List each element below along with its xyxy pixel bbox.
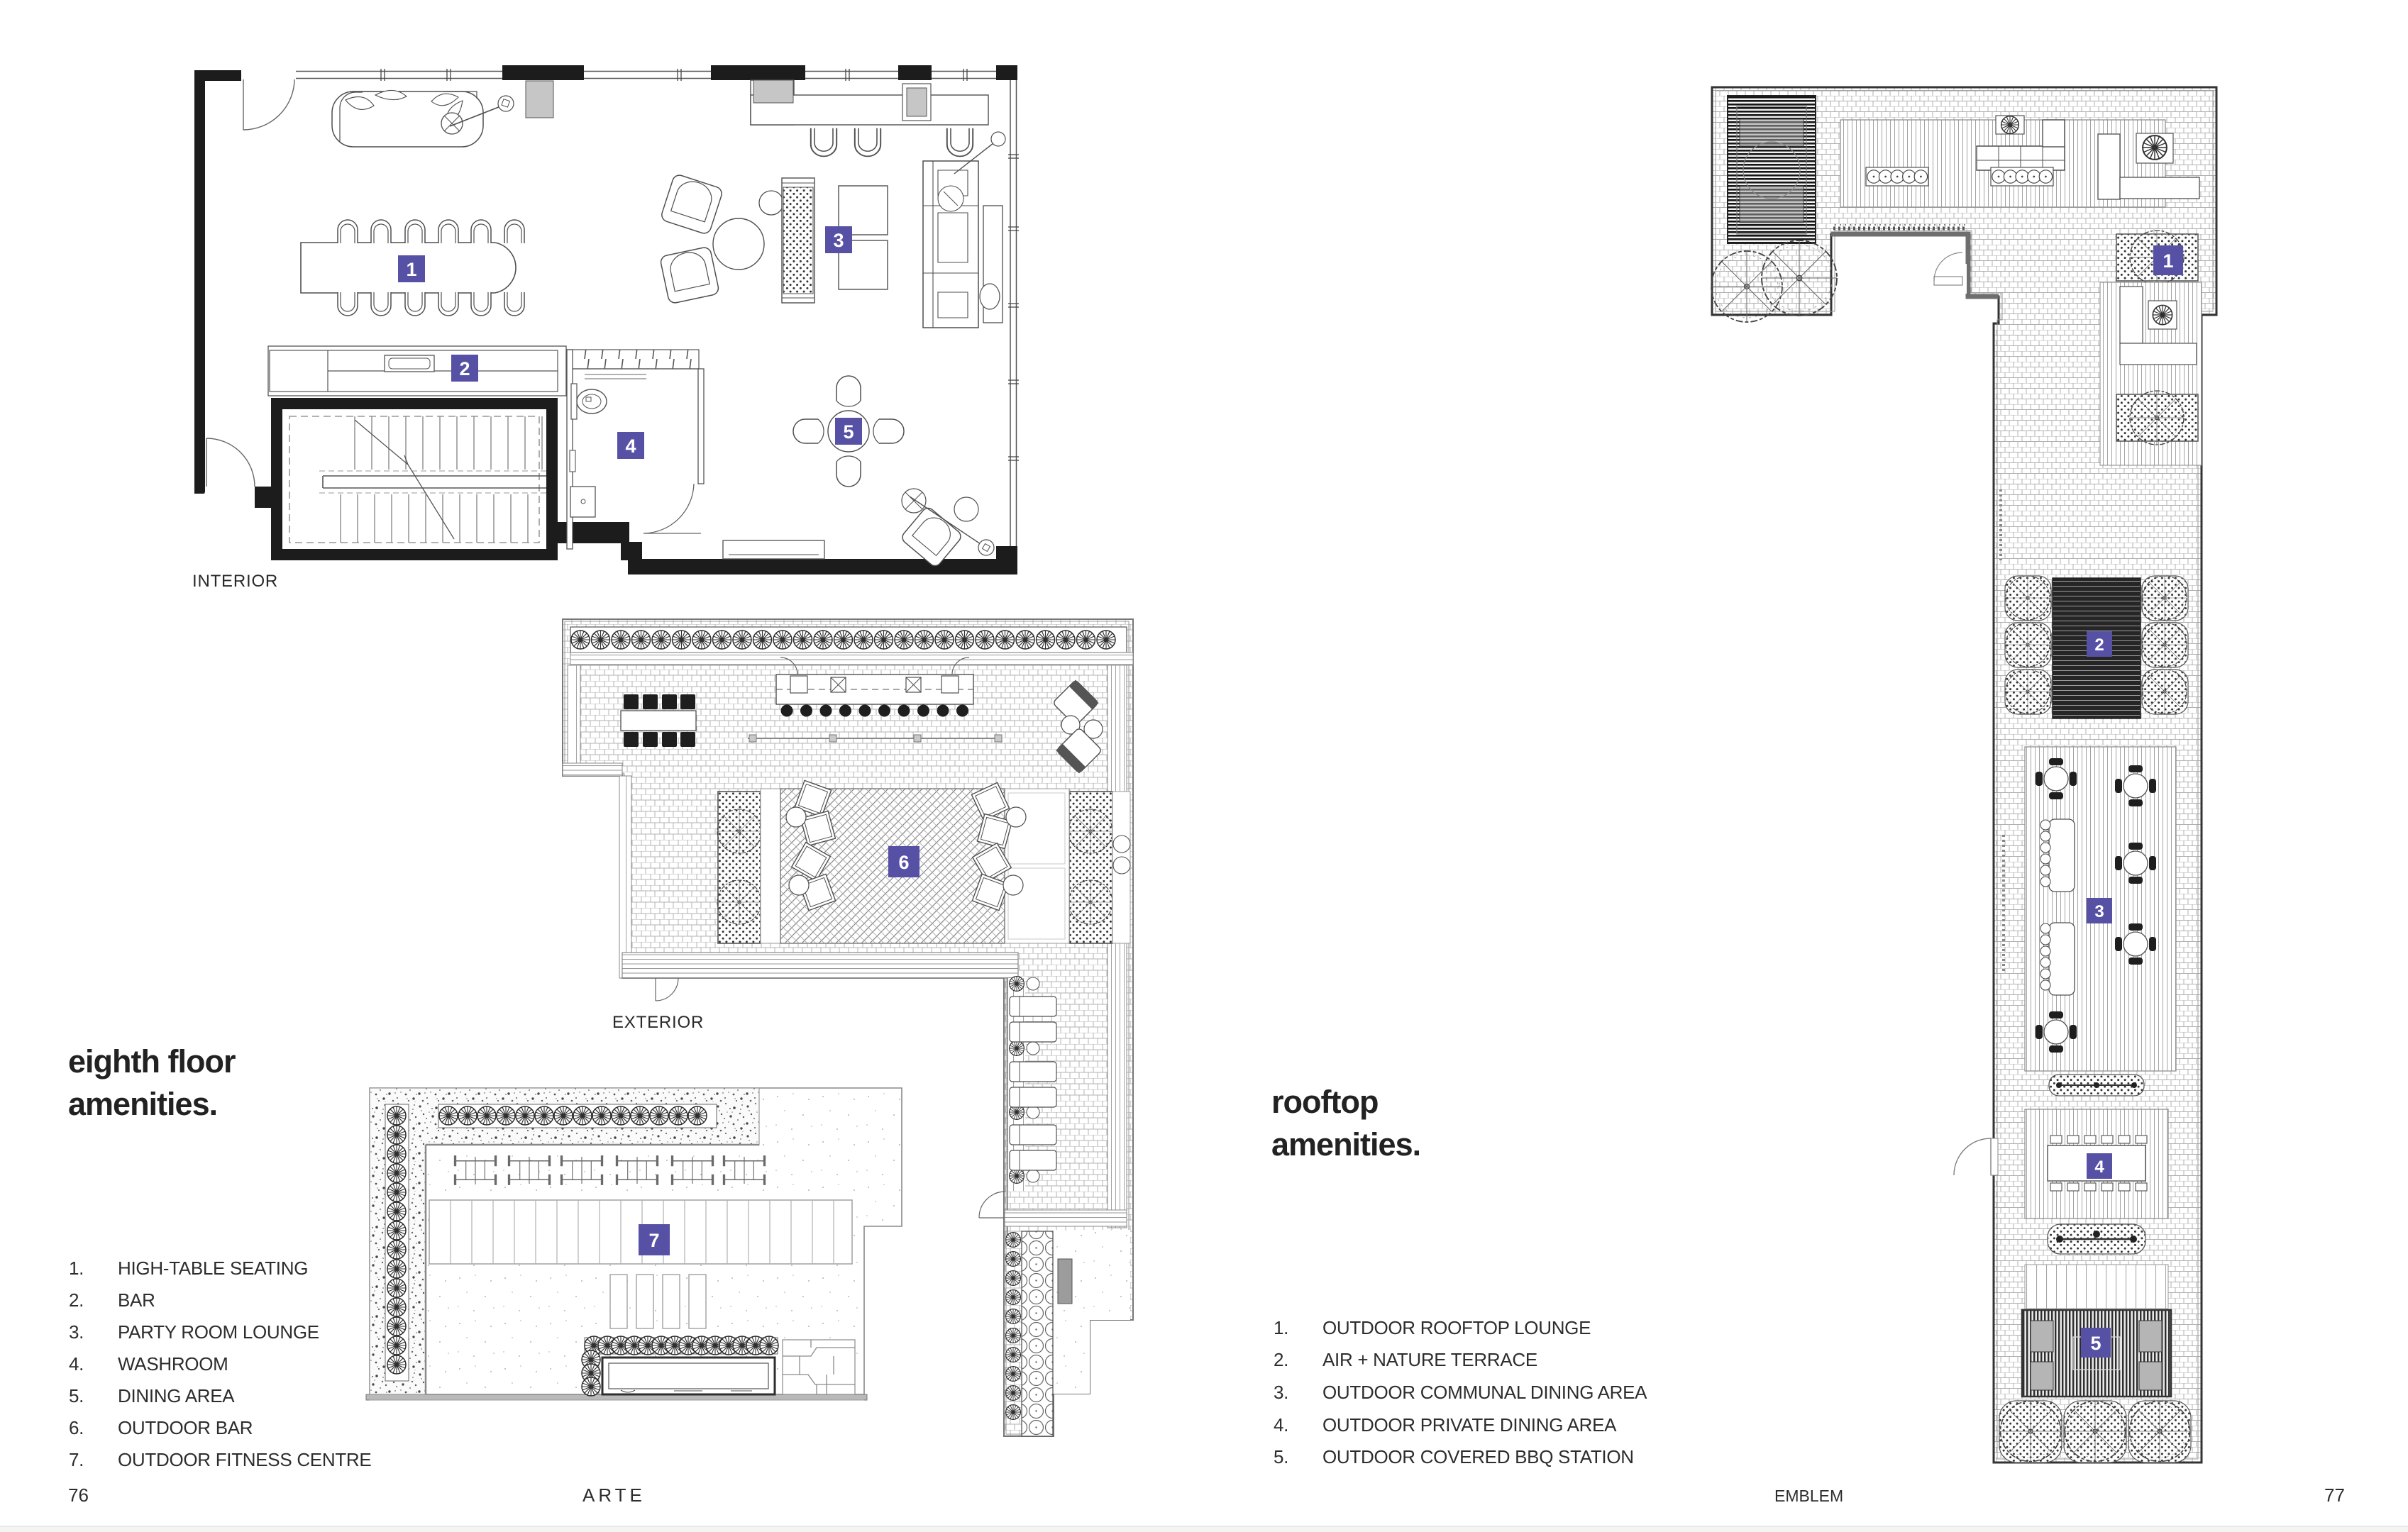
svg-text:2: 2 (2094, 635, 2104, 655)
svg-text:eighth floor: eighth floor (68, 1043, 236, 1079)
svg-text:HIGH-TABLE SEATING: HIGH-TABLE SEATING (118, 1258, 308, 1279)
svg-text:EXTERIOR: EXTERIOR (612, 1013, 704, 1032)
svg-text:OUTDOOR COVERED BBQ STATION: OUTDOOR COVERED BBQ STATION (1322, 1446, 1634, 1467)
svg-text:1.: 1. (69, 1258, 84, 1279)
svg-text:rooftop: rooftop (1271, 1084, 1378, 1120)
svg-text:6: 6 (898, 852, 909, 873)
svg-text:4.: 4. (69, 1353, 84, 1375)
svg-text:amenities.: amenities. (68, 1086, 217, 1122)
svg-text:5.: 5. (1274, 1446, 1288, 1467)
svg-text:1: 1 (2163, 250, 2173, 272)
svg-text:4.: 4. (1274, 1414, 1288, 1436)
svg-text:7.: 7. (69, 1449, 84, 1470)
svg-text:3: 3 (2094, 902, 2104, 921)
svg-text:3.: 3. (69, 1321, 84, 1343)
svg-text:BAR: BAR (118, 1289, 155, 1311)
svg-text:amenities.: amenities. (1271, 1126, 1420, 1162)
svg-text:4: 4 (2094, 1158, 2104, 1177)
svg-text:INTERIOR: INTERIOR (192, 572, 278, 591)
svg-text:ARTE: ARTE (582, 1484, 646, 1506)
svg-text:OUTDOOR FITNESS CENTRE: OUTDOOR FITNESS CENTRE (118, 1449, 371, 1470)
svg-text:OUTDOOR BAR: OUTDOOR BAR (118, 1417, 253, 1438)
svg-text:OUTDOOR ROOFTOP LOUNGE: OUTDOOR ROOFTOP LOUNGE (1322, 1317, 1591, 1338)
svg-text:1.: 1. (1274, 1317, 1288, 1338)
svg-text:76: 76 (68, 1484, 89, 1506)
svg-text:DINING AREA: DINING AREA (118, 1385, 235, 1406)
svg-text:2.: 2. (69, 1289, 84, 1311)
svg-text:4: 4 (625, 435, 636, 457)
svg-text:EMBLEM: EMBLEM (1774, 1487, 1843, 1505)
svg-text:5: 5 (843, 421, 854, 443)
svg-text:2.: 2. (1274, 1349, 1288, 1370)
svg-text:5.: 5. (69, 1385, 84, 1406)
svg-text:7: 7 (648, 1230, 659, 1251)
svg-text:WASHROOM: WASHROOM (118, 1353, 228, 1375)
svg-text:77: 77 (2324, 1484, 2345, 1506)
svg-text:OUTDOOR PRIVATE DINING AREA: OUTDOOR PRIVATE DINING AREA (1322, 1414, 1617, 1436)
svg-text:OUTDOOR COMMUNAL DINING AREA: OUTDOOR COMMUNAL DINING AREA (1322, 1382, 1647, 1403)
svg-text:PARTY ROOM LOUNGE: PARTY ROOM LOUNGE (118, 1321, 319, 1343)
svg-text:3: 3 (833, 230, 844, 251)
svg-text:2: 2 (459, 358, 470, 379)
svg-text:5: 5 (2090, 1333, 2101, 1354)
svg-text:1: 1 (406, 259, 416, 280)
svg-text:3.: 3. (1274, 1382, 1288, 1403)
svg-text:6.: 6. (69, 1417, 84, 1438)
svg-text:AIR + NATURE TERRACE: AIR + NATURE TERRACE (1322, 1349, 1537, 1370)
